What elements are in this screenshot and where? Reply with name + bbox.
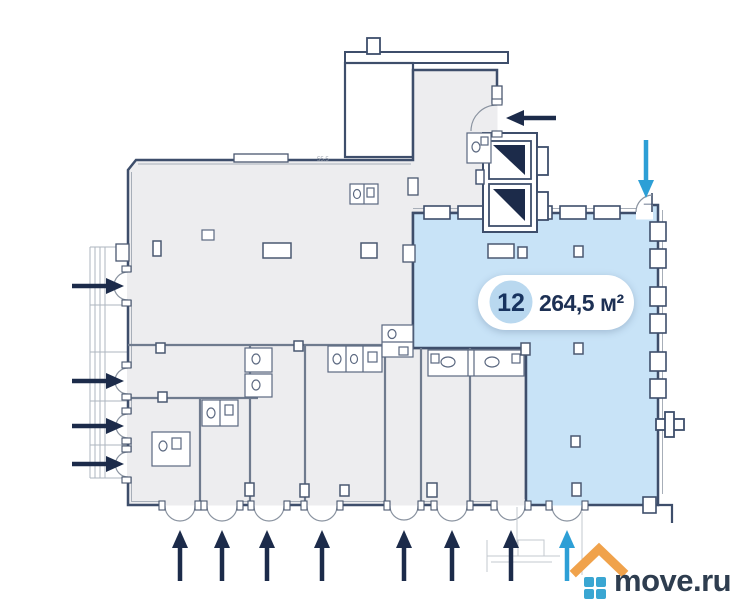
upper-room [345, 63, 413, 157]
unit-number: 12 [497, 289, 525, 317]
logo-squares-icon [584, 577, 606, 599]
logo-text: move.ru [614, 563, 731, 598]
moveru-logo: move.ru [576, 549, 731, 599]
dimension-text: 55.5 [317, 157, 329, 163]
right-wall-pier [656, 412, 684, 437]
left-doors [114, 266, 133, 483]
unit-12-top-door [636, 193, 653, 220]
roof-stack [367, 38, 380, 54]
floor-plan: 12 264,5 м² 55.5 move.ru [0, 0, 744, 600]
unit-area: 264,5 м² [539, 290, 624, 316]
unit-12-badge[interactable]: 12 264,5 м² [478, 275, 634, 330]
floorplan-image[interactable]: 12 264,5 м² 55.5 move.ru [0, 0, 744, 600]
